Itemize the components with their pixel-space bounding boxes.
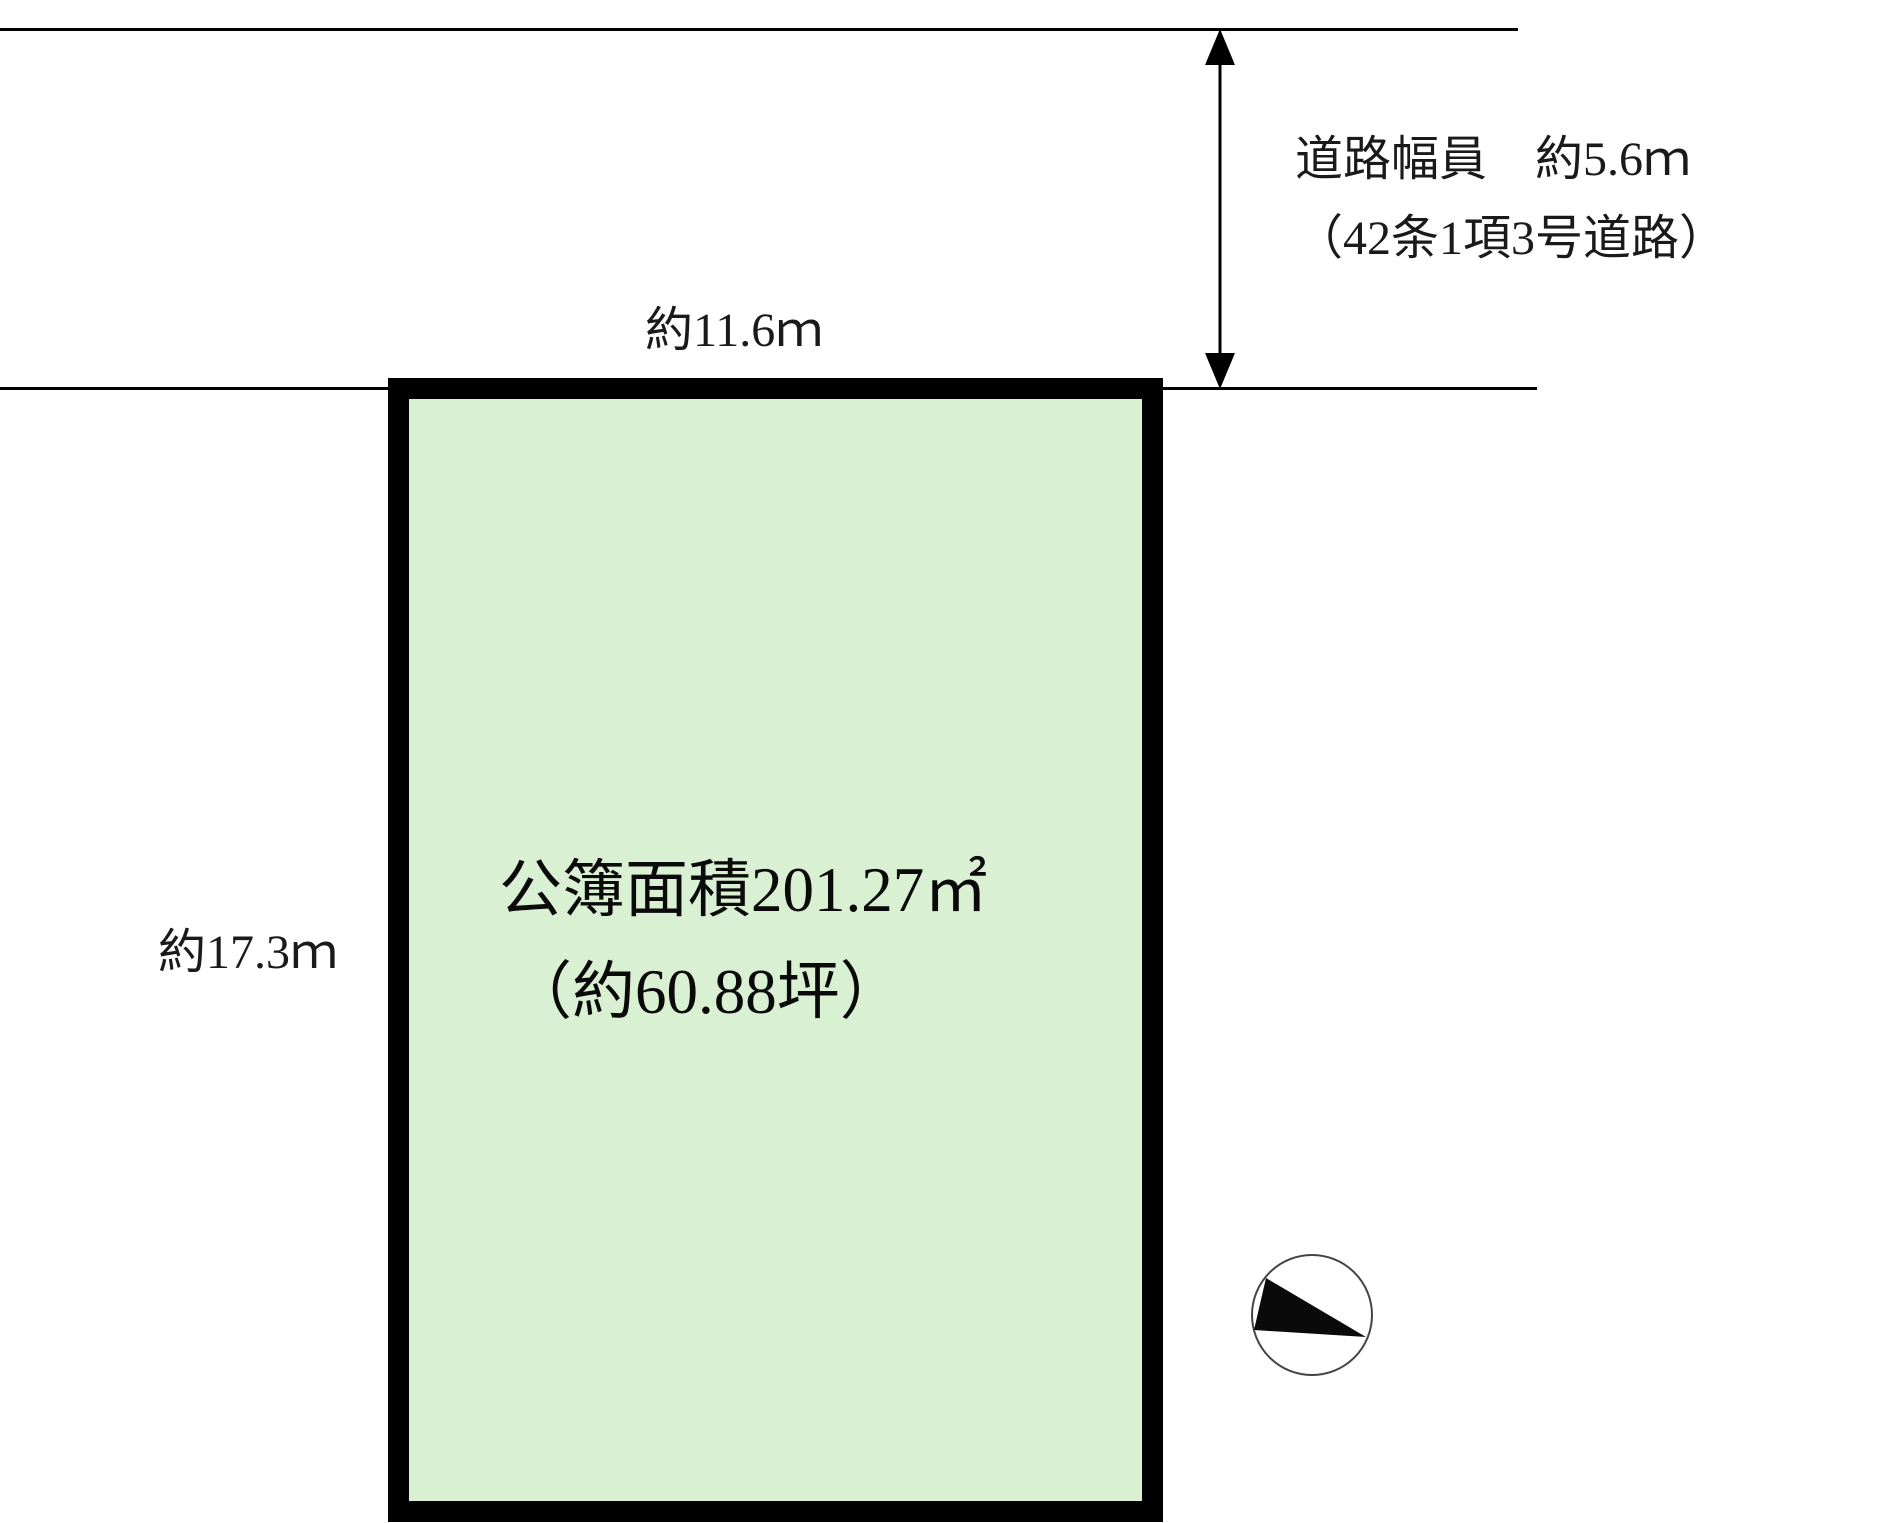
land-plot-diagram: 道路幅員 約5.6ｍ （42条1項3号道路） 約11.6ｍ 約17.3ｍ 公簿面… bbox=[0, 0, 1882, 1523]
road-width-label: 道路幅員 約5.6ｍ （42条1項3号道路） bbox=[1295, 136, 1727, 263]
road-width-value: 道路幅員 約5.6ｍ bbox=[1295, 136, 1727, 184]
road-width-arrow-icon bbox=[1192, 29, 1248, 389]
plot-width-dimension: 約11.6ｍ bbox=[645, 303, 823, 358]
road-edge-line-top bbox=[0, 28, 1518, 31]
plot-registered-area: 公簿面積201.27㎡ bbox=[499, 859, 987, 922]
road-classification: （42条1項3号道路） bbox=[1295, 215, 1727, 263]
plot-height-dimension: 約17.3ｍ bbox=[158, 925, 338, 980]
land-plot: 公簿面積201.27㎡ （約60.88坪） bbox=[388, 378, 1163, 1522]
compass-icon bbox=[1245, 1247, 1379, 1381]
plot-area-tsubo: （約60.88坪） bbox=[509, 961, 903, 1024]
